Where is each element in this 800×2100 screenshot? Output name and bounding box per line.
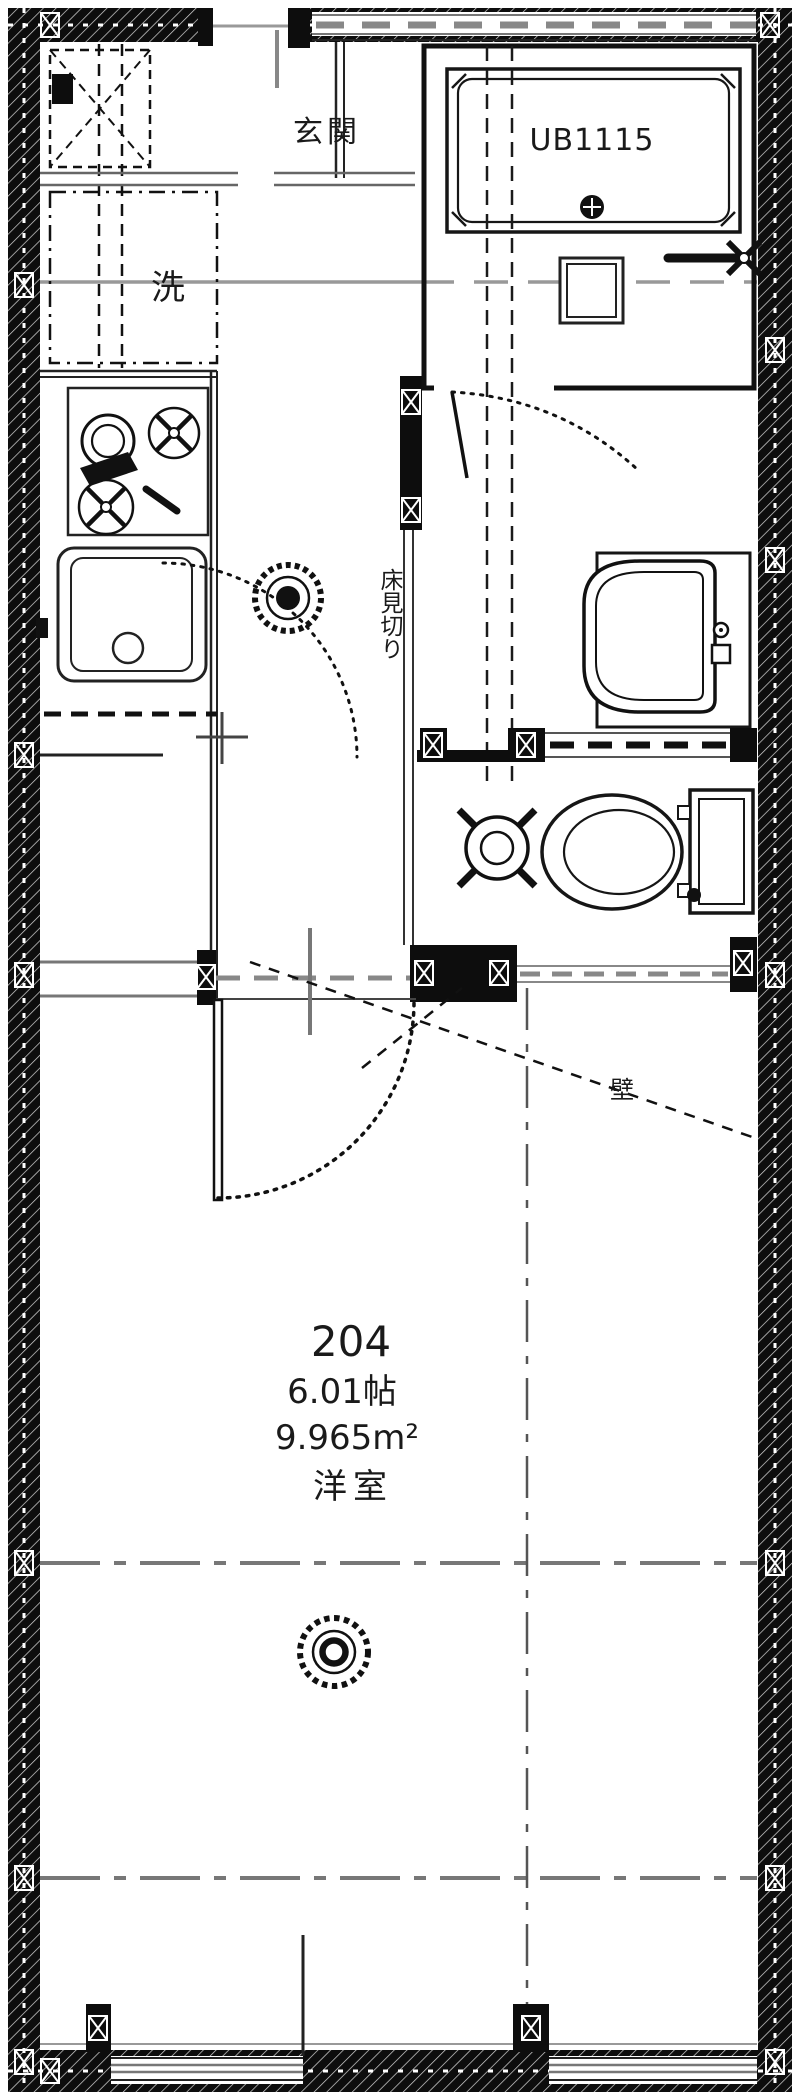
toilet [542,790,753,913]
room-area-jo: 6.01帖 [287,1372,397,1412]
entry-door-jamb [198,8,213,46]
room-door-leaf [214,1000,222,1200]
floor-plan-svg: 玄関 洗 UB1115 床見切り 壁 204 6.01帖 9.965m² 洋室 [0,0,800,2100]
pipe-space [52,74,73,104]
wall-note-label: 壁 [610,1076,634,1104]
gas-stove [68,388,208,535]
floor-divider-label: 床見切り [376,568,404,660]
entrance-label: 玄関 [293,115,361,150]
room-number: 204 [311,1317,391,1366]
bath-counter [560,258,623,323]
kitchen-sink [36,548,206,681]
room-area-m2: 9.965m² [275,1418,419,1458]
corridor-wall-post [400,376,422,530]
entry-door-jamb [288,8,310,48]
drain-pipe-icon [459,810,535,886]
toilet-bottom-wall [410,945,517,1002]
unit-bath-label: UB1115 [530,123,655,158]
plan-background [0,0,800,2100]
room-type: 洋室 [313,1467,393,1507]
bath-drain-icon [580,195,604,219]
top-window-band [312,12,756,40]
laundry-label: 洗 [151,268,185,308]
washbasin [584,553,750,727]
